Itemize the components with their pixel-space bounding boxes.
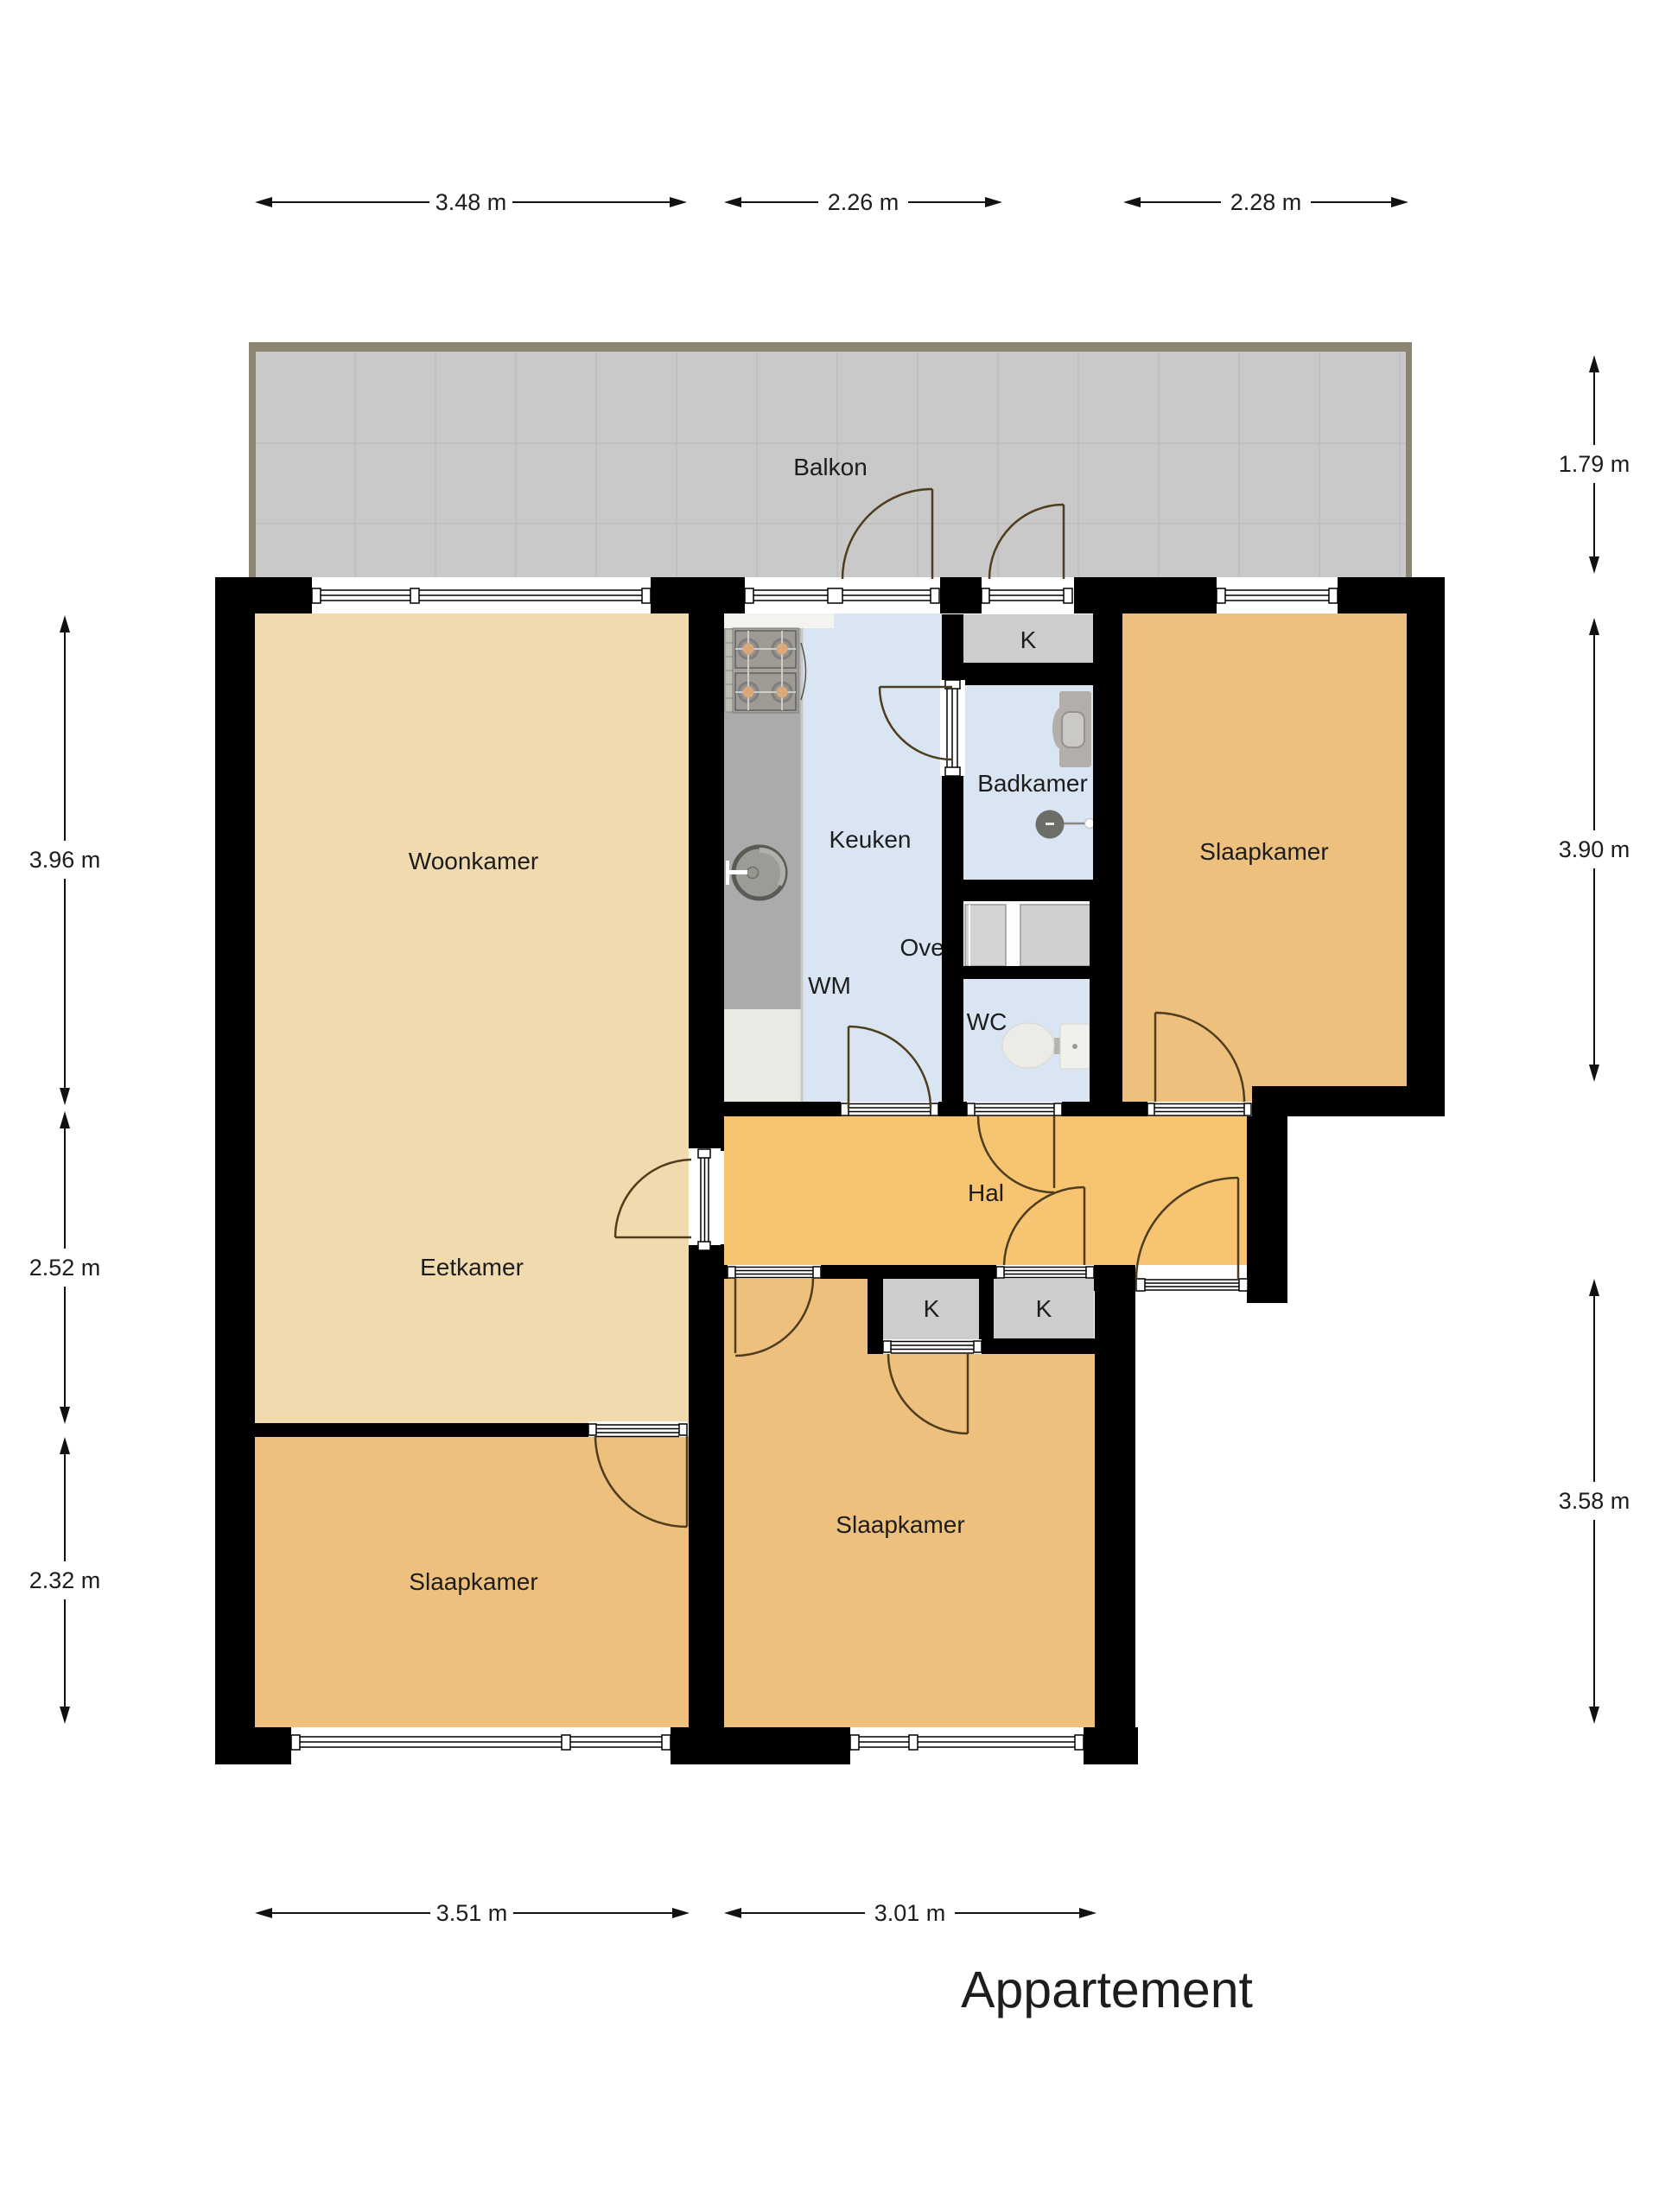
svg-text:K: K bbox=[1020, 626, 1037, 653]
svg-text:Appartement: Appartement bbox=[961, 1961, 1253, 2018]
svg-text:3.51 m: 3.51 m bbox=[436, 1900, 508, 1926]
svg-text:3.48 m: 3.48 m bbox=[435, 189, 507, 215]
svg-text:2.28 m: 2.28 m bbox=[1230, 189, 1302, 215]
svg-text:WC: WC bbox=[967, 1008, 1007, 1035]
svg-text:Keuken: Keuken bbox=[829, 826, 912, 853]
svg-text:3.01 m: 3.01 m bbox=[874, 1900, 946, 1926]
svg-text:3.90 m: 3.90 m bbox=[1559, 836, 1630, 862]
svg-text:2.52 m: 2.52 m bbox=[29, 1255, 101, 1281]
svg-text:1.79 m: 1.79 m bbox=[1559, 451, 1630, 477]
svg-text:WM: WM bbox=[808, 972, 851, 999]
svg-text:K: K bbox=[924, 1295, 940, 1322]
svg-text:Eetkamer: Eetkamer bbox=[420, 1254, 524, 1281]
svg-text:Badkamer: Badkamer bbox=[977, 770, 1088, 797]
svg-text:3.58 m: 3.58 m bbox=[1559, 1488, 1630, 1514]
svg-text:Slaapkamer: Slaapkamer bbox=[409, 1568, 537, 1595]
svg-text:Balkon: Balkon bbox=[793, 454, 868, 480]
svg-text:Woonkamer: Woonkamer bbox=[409, 848, 538, 874]
svg-text:3.96 m: 3.96 m bbox=[29, 847, 101, 873]
svg-text:Slaapkamer: Slaapkamer bbox=[1199, 838, 1328, 865]
svg-text:2.26 m: 2.26 m bbox=[828, 189, 899, 215]
svg-text:Slaapkamer: Slaapkamer bbox=[836, 1511, 964, 1538]
svg-text:Hal: Hal bbox=[968, 1179, 1004, 1206]
svg-text:2.32 m: 2.32 m bbox=[29, 1567, 101, 1593]
svg-text:K: K bbox=[1036, 1295, 1052, 1322]
